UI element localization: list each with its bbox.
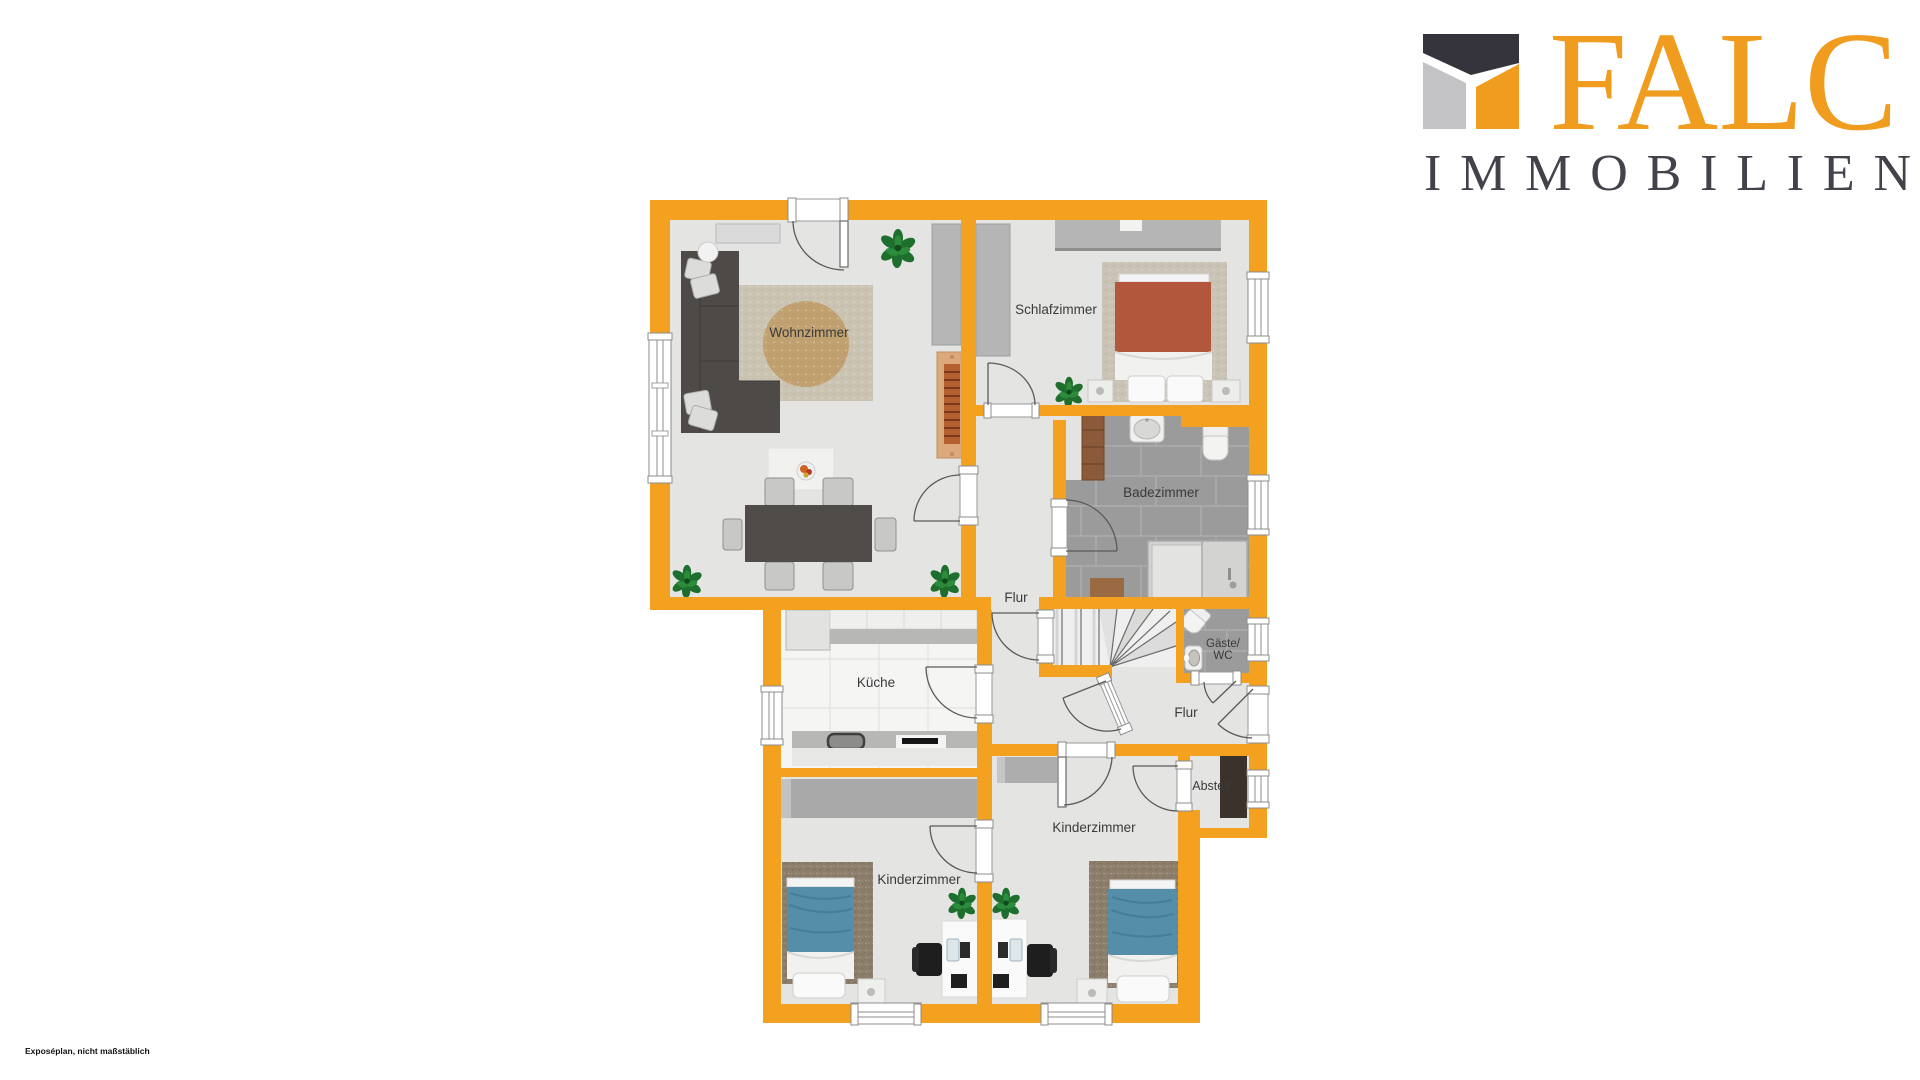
svg-text:Abstell: Abstell: [1192, 779, 1230, 793]
svg-text:Exposéplan, nicht maßstäblich: Exposéplan, nicht maßstäblich: [25, 1046, 150, 1056]
svg-text:FALC: FALC: [1549, 2, 1898, 160]
svg-text:Küche: Küche: [857, 675, 895, 690]
svg-text:Gäste/: Gäste/: [1206, 638, 1241, 650]
svg-text:Schlafzimmer: Schlafzimmer: [1015, 302, 1097, 317]
svg-text:Flur: Flur: [1004, 590, 1028, 605]
svg-text:Kinderzimmer: Kinderzimmer: [877, 872, 961, 887]
svg-text:WC: WC: [1213, 650, 1232, 662]
svg-text:Kinderzimmer: Kinderzimmer: [1052, 820, 1136, 835]
svg-text:IMMOBILIEN: IMMOBILIEN: [1424, 145, 1911, 202]
svg-text:Flur: Flur: [1174, 705, 1198, 720]
svg-text:Wohnzimmer: Wohnzimmer: [769, 325, 849, 340]
svg-text:Badezimmer: Badezimmer: [1123, 485, 1199, 500]
